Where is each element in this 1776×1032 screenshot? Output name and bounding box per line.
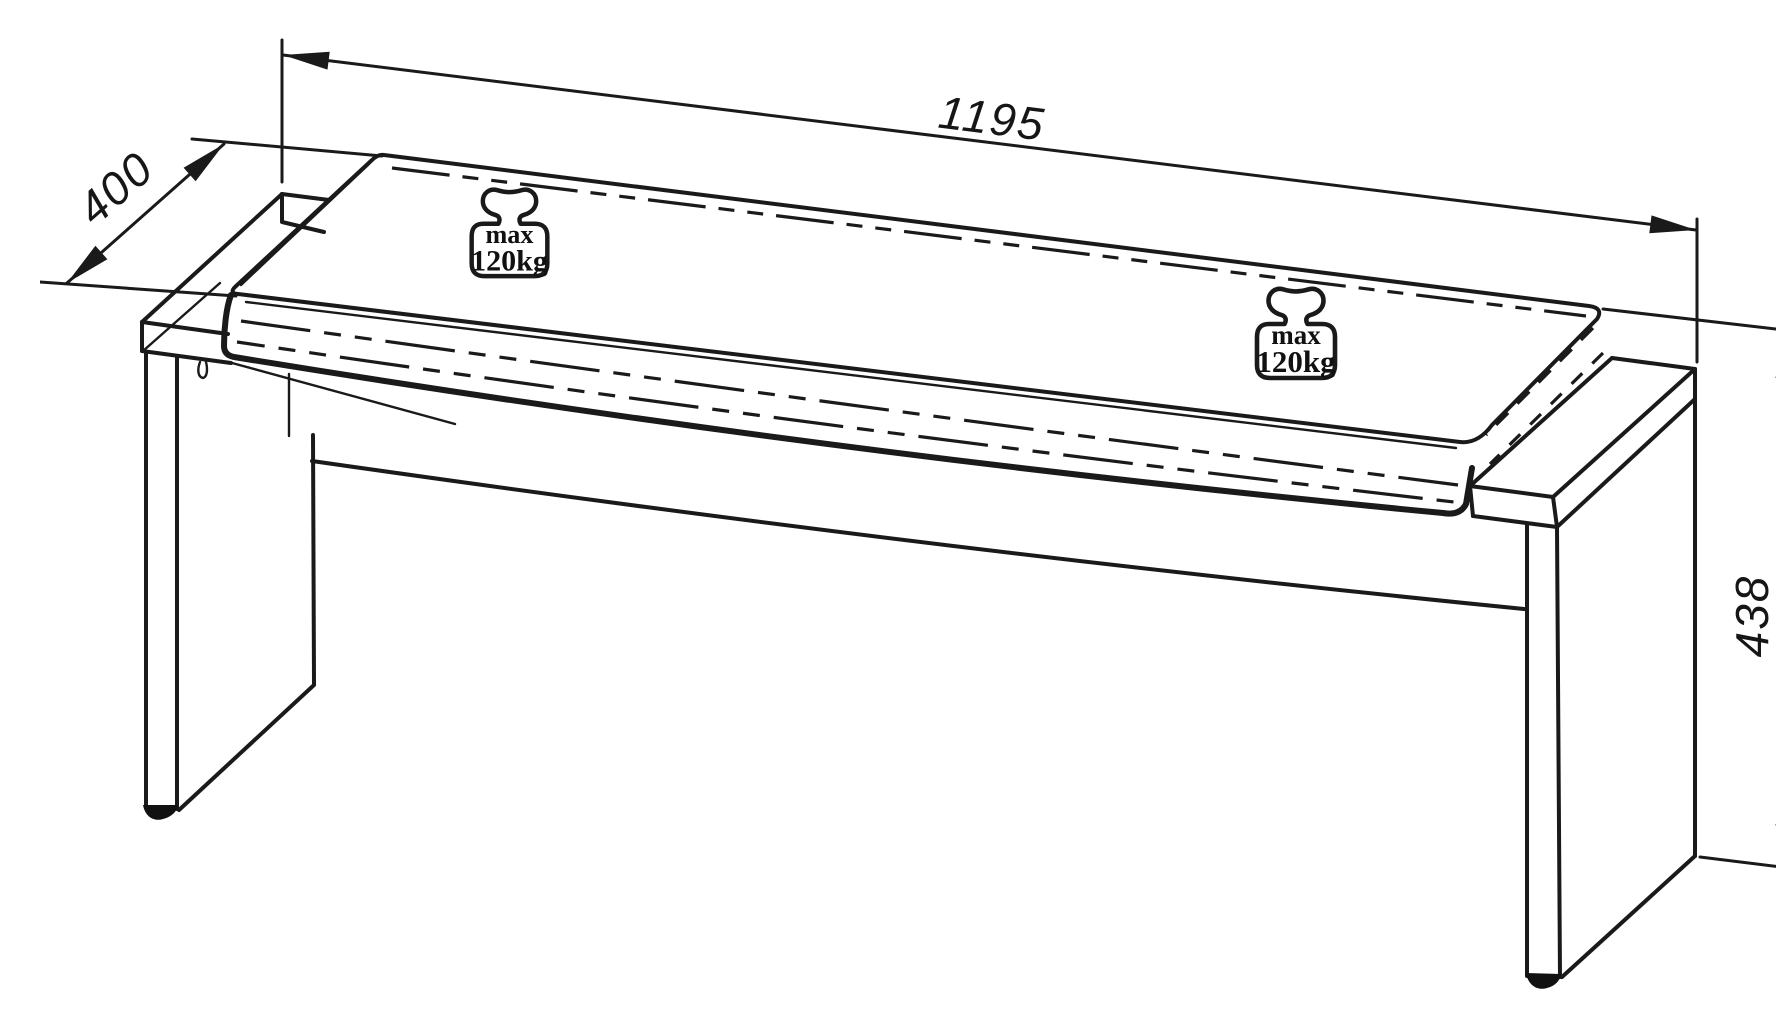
height-extension-line-bottom bbox=[1700, 857, 1776, 871]
right-rail-front-bottom-edge bbox=[1473, 516, 1557, 527]
depth-dimension-label: 400 bbox=[67, 141, 163, 235]
dimension-length: 1195 bbox=[282, 40, 1697, 362]
right-rail-front-edge bbox=[1470, 486, 1553, 497]
technical-drawing: 1195 400 438 max 120kg max 120kg bbox=[40, 16, 1776, 1016]
right-rail bbox=[1470, 358, 1695, 527]
left-rail-front-top-edge bbox=[142, 322, 228, 334]
bench-line-drawing: 1195 400 438 max 120kg max 120kg bbox=[40, 16, 1776, 1016]
dimension-depth: 400 bbox=[40, 139, 382, 296]
dimension-height: 438 bbox=[1603, 309, 1776, 871]
right-rail-end-top-edge bbox=[1553, 369, 1695, 497]
length-dimension-label: 1195 bbox=[936, 86, 1049, 151]
left-rail-front-bottom-edge bbox=[142, 351, 231, 363]
right-rail-front-left-edge bbox=[1470, 486, 1473, 516]
left-leg-back-edge bbox=[313, 435, 314, 684]
max-load-value: 120kg bbox=[471, 243, 548, 277]
cushion-left-inner-line bbox=[241, 164, 369, 285]
height-extension-line-top bbox=[1603, 309, 1776, 333]
seat-cushion bbox=[224, 155, 1603, 514]
max-load-badge-2: max 120kg bbox=[1256, 289, 1336, 379]
right-leg-bottom-edge bbox=[1562, 856, 1695, 977]
right-rail-front-right-edge bbox=[1553, 497, 1557, 527]
right-foot-glide bbox=[1526, 973, 1561, 989]
cushion-top-face bbox=[233, 155, 1600, 442]
cushion-back-inner-line bbox=[392, 168, 1586, 316]
max-load-badge-1: max 120kg bbox=[471, 190, 548, 278]
cushion-seam-end-wrap-1 bbox=[1486, 328, 1593, 435]
right-rail-end-bottom-edge bbox=[1557, 399, 1695, 527]
right-rail-back-edge bbox=[1612, 358, 1695, 369]
right-leg-front-right-edge bbox=[1557, 528, 1560, 977]
hinge-loop-detail bbox=[198, 362, 207, 378]
board-bottom-edge bbox=[312, 461, 1524, 609]
height-dimension-label: 438 bbox=[1726, 575, 1776, 658]
left-rail-back-edge bbox=[282, 194, 329, 200]
depth-extension-line-bottom bbox=[40, 282, 236, 296]
max-load-value: 120kg bbox=[1256, 344, 1336, 379]
right-leg bbox=[1526, 399, 1695, 989]
left-leg-bottom-edge bbox=[179, 685, 314, 810]
left-foot-glide bbox=[143, 805, 178, 820]
